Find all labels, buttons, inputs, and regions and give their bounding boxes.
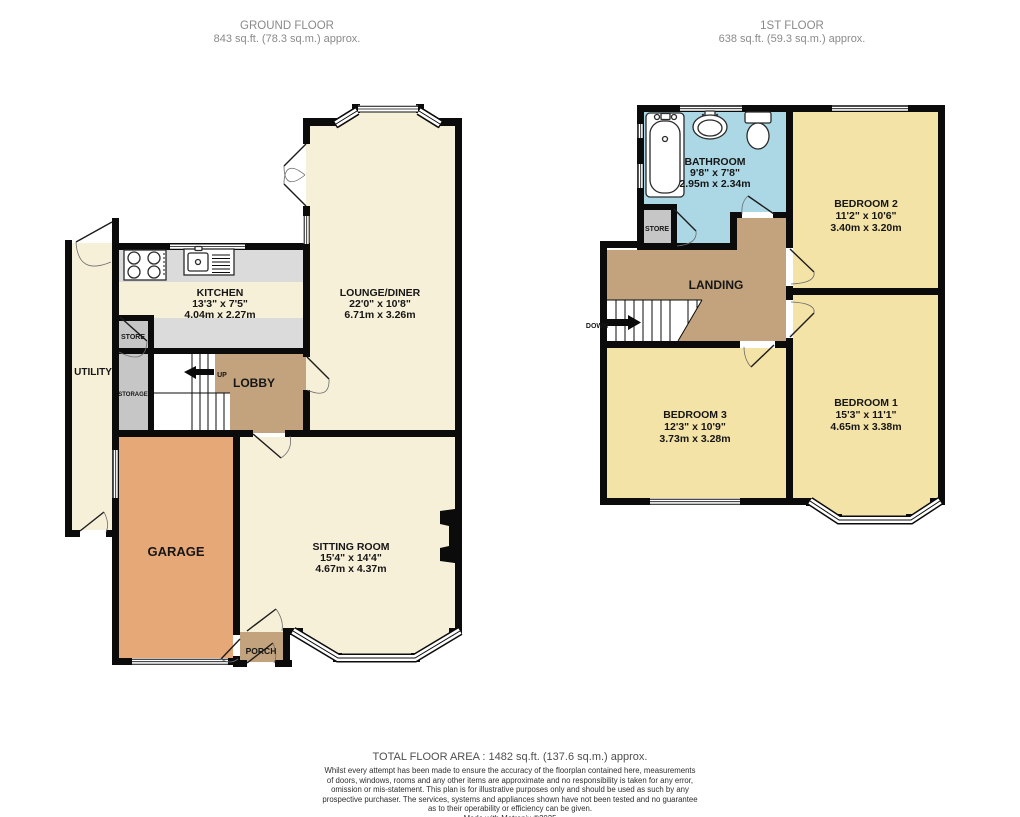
bedroom1-label: BEDROOM 1 <box>834 397 898 409</box>
sitting-room <box>240 437 455 633</box>
bedroom3-label: BEDROOM 3 <box>663 409 727 421</box>
down-label: DOWN <box>586 323 608 330</box>
bathroom-dim-metric: 2.95m x 2.34m <box>679 178 750 190</box>
utility-room <box>72 243 112 530</box>
up-label: UP <box>217 372 227 379</box>
disclaimer-line: of doors, windows, rooms and any other i… <box>0 776 1020 786</box>
disclaimer: Whilst every attempt has been made to en… <box>0 766 1020 817</box>
kitchen-counter-bottom <box>154 318 310 348</box>
store-ground-label: STORE <box>121 334 145 341</box>
porch-label: PORCH <box>246 646 277 656</box>
bedroom2-label: BEDROOM 2 <box>834 198 898 210</box>
sink-icon <box>184 247 234 276</box>
bedroom1-dim-metric: 4.65m x 3.38m <box>830 421 901 433</box>
floorplan-canvas: GROUND FLOOR 843 sq.ft. (78.3 sq.m.) app… <box>0 0 1020 817</box>
bathtub-icon <box>646 113 684 197</box>
bedroom3-dim-imperial: 12'3" x 10'9" <box>664 421 726 433</box>
disclaimer-line: as to their operability or efficiency ca… <box>0 804 1020 814</box>
footer: TOTAL FLOOR AREA : 1482 sq.ft. (137.6 sq… <box>0 751 1020 817</box>
disclaimer-line: prospective purchaser. The services, sys… <box>0 795 1020 805</box>
lobby-label: LOBBY <box>233 376 275 390</box>
bedroom2-dim-metric: 3.40m x 3.20m <box>830 222 901 234</box>
disclaimer-line: omission or mis-statement. This plan is … <box>0 785 1020 795</box>
landing-label: LANDING <box>689 278 744 292</box>
toilet-icon <box>745 112 771 149</box>
kitchen-dim-metric: 4.04m x 2.27m <box>184 309 255 321</box>
disclaimer-line: Whilst every attempt has been made to en… <box>0 766 1020 776</box>
floorplan-drawing: UP DOWN <box>0 0 1020 817</box>
garage-label: GARAGE <box>147 544 204 559</box>
storage-label: STORAGE <box>118 392 148 398</box>
bedroom1-dim-imperial: 15'3" x 11'1" <box>835 409 896 421</box>
bedroom2-dim-imperial: 11'2" x 10'6" <box>835 210 896 222</box>
store-first-label: STORE <box>645 226 669 233</box>
total-floor-area: TOTAL FLOOR AREA : 1482 sq.ft. (137.6 sq… <box>0 751 1020 763</box>
bedroom3-dim-metric: 3.73m x 3.28m <box>659 433 730 445</box>
utility-label: UTILITY <box>74 367 112 378</box>
lounge-dim-metric: 6.71m x 3.26m <box>344 309 415 321</box>
sitting-room-dim-metric: 4.67m x 4.37m <box>315 563 386 575</box>
stove-icon <box>124 250 166 280</box>
